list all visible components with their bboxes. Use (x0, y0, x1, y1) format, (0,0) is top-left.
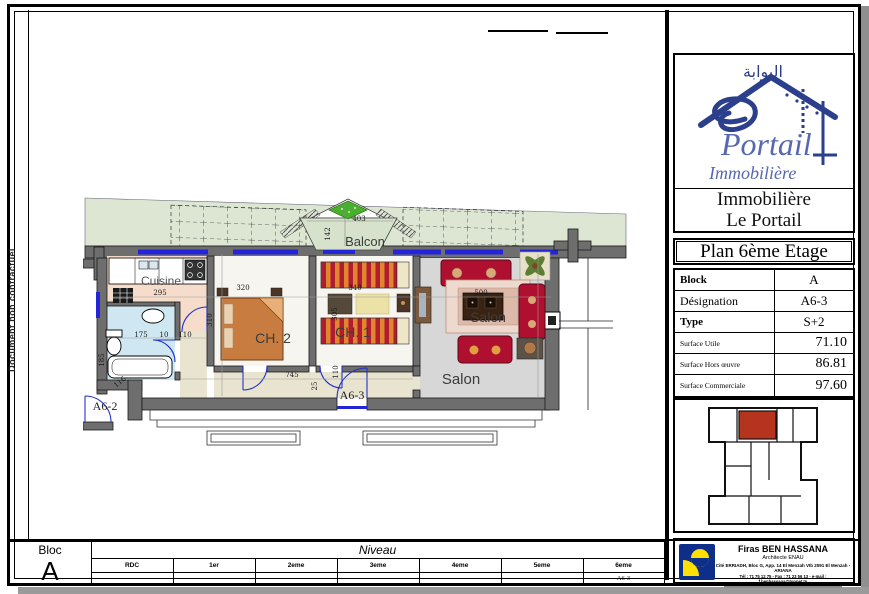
salon-window (445, 250, 503, 255)
spec-value: 97.60 (775, 375, 853, 396)
dim-corridor-length: 745 (277, 371, 307, 379)
spec-label: Block (675, 270, 775, 290)
spec-label: Surface Utile (675, 333, 775, 353)
toilet-icon (107, 337, 121, 355)
toilet-tank (106, 330, 122, 337)
dim-bath-width: 175 (126, 331, 156, 339)
agency-name-line1: Immobilière (675, 189, 853, 210)
pillow (224, 328, 233, 348)
floor-plan: Balcon Cuisine CH. 2 CH. 1 Salon Salon A… (83, 188, 628, 473)
fine-print (724, 586, 842, 588)
nightstand (271, 288, 282, 296)
nightstand (217, 288, 228, 296)
armchair (519, 284, 545, 340)
level-value-rdc (91, 572, 173, 585)
bedroom2-window (233, 250, 298, 255)
agency-logo: البوابة Portail Immobilière (675, 55, 853, 187)
dim-ch2-width: 320 (228, 284, 258, 292)
sheet-title: Plan 6ème Etage (676, 241, 852, 262)
level-header-2eme: 2eme (255, 558, 337, 572)
spec-table: Block A Désignation A6-3 Type S+2 Surfac… (673, 268, 855, 398)
spec-label: Type (675, 312, 775, 332)
panel-separator-line (665, 10, 669, 580)
bath-window (96, 292, 100, 318)
room-label-cuisine: Cuisine (133, 274, 189, 288)
level-value-4eme (419, 572, 501, 585)
dim-balcony-depth: 142 (324, 219, 332, 249)
level-header-rdc: RDC (91, 558, 173, 572)
footer-table: Bloc A Niveau RDC 1er 2eme 3eme 4eme 5em… (8, 541, 665, 585)
dim-balcony-width: 403 (344, 215, 374, 223)
architect-role: Architecte ENAU (715, 555, 851, 561)
level-header-3eme: 3eme (337, 558, 419, 572)
key-plan-highlighted-unit (739, 411, 776, 439)
agency-logo-box: البوابة Portail Immobilière Immobilière … (673, 53, 855, 233)
room-label-salon: Salon (433, 371, 489, 388)
unit-label-a63: A6-3 (330, 388, 374, 403)
level-value-2eme (255, 572, 337, 585)
dim-ch2-depth: 310 (206, 305, 214, 335)
dim-ch1-depth: 305 (331, 299, 339, 329)
spec-row-block: Block A (675, 270, 853, 291)
architect-contact: Tél : 71 75 12 75 - Fax : 71 23 56 13 - … (715, 574, 851, 584)
key-plan-box (673, 398, 855, 533)
agency-name-line2: Le Portail (675, 210, 853, 231)
level-value-6eme: A6-3 (583, 572, 664, 585)
scan-shadow-right (861, 6, 869, 594)
architect-box: Firas BEN HASSANA Architecte ENAU Cité E… (673, 538, 855, 584)
hall-floor (180, 332, 207, 398)
entrance-threshold (337, 406, 367, 409)
level-header-6eme: 6eme (583, 558, 664, 572)
spec-row-surface-commerciale: Surface Commerciale 97.60 (675, 375, 853, 396)
neighbour-unit-lines (559, 258, 613, 410)
scan-shadow-bottom (18, 587, 869, 594)
plan-sheet-page: Document non contractuel (0, 0, 869, 594)
bedroom2-furniture (217, 288, 283, 360)
loveseat (458, 336, 512, 363)
level-header-4eme: 4eme (419, 558, 501, 572)
spec-value: A (775, 270, 853, 290)
dim-ch1-width: 340 (340, 284, 370, 292)
level-header-5eme: 5eme (501, 558, 583, 572)
spec-value: A6-3 (775, 291, 853, 311)
unit-label-a62: A6-2 (85, 399, 125, 414)
footer-bloc-value: A (9, 558, 91, 585)
left-margin-line (28, 10, 29, 540)
level-value-1er (173, 572, 255, 585)
neighbour-wall-segment (488, 30, 548, 32)
bedroom1-window (393, 250, 441, 255)
salon-wall-niche (544, 312, 560, 329)
spec-row-surface-utile: Surface Utile 71.10 (675, 333, 853, 354)
bathtub-icon (108, 356, 172, 378)
washbasin-icon (142, 309, 164, 323)
architect-logo (679, 544, 715, 580)
spec-row-surface-hors-oeuvre: Surface Hors œuvre 86.81 (675, 354, 853, 375)
dim-kitchen-width: 295 (145, 289, 175, 297)
level-value-3eme (337, 572, 419, 585)
room-label-salon-center: Salon (461, 309, 515, 325)
logo-immobiliere-script: Immobilière (708, 163, 796, 183)
spec-row-type: Type S+2 (675, 312, 853, 333)
logo-portail-text: Portail (720, 126, 812, 162)
architect-info: Firas BEN HASSANA Architecte ENAU Cité E… (715, 544, 851, 588)
agency-name: Immobilière Le Portail (675, 188, 853, 231)
dim-hall-width: 110 (173, 331, 197, 339)
spec-label: Surface Hors œuvre (675, 354, 775, 374)
dim-salon-width: 500 (466, 289, 496, 297)
architect-address: Cité ERRIADH, Bloc G, App. 14 El Menzah … (715, 563, 851, 573)
dim-wall-gap: 10 (157, 331, 171, 339)
spec-label: Surface Commerciale (675, 375, 775, 396)
spec-label: Désignation (675, 291, 775, 311)
spec-value: 86.81 (775, 354, 853, 374)
room-label-balcon: Balcon (335, 234, 395, 249)
architect-name: Firas BEN HASSANA (715, 544, 851, 554)
room-label-ch2: CH. 2 (243, 330, 303, 346)
footer-niveau-label: Niveau (91, 542, 664, 558)
kitchen-appliance (113, 288, 133, 303)
non-contractual-note: Document non contractuel (7, 228, 17, 392)
level-header-1er: 1er (173, 558, 255, 572)
kitchen-sink (139, 261, 148, 269)
dim-entry-offset: 25 (311, 379, 319, 393)
neighbour-wall-segment (556, 32, 608, 34)
balcony-door (323, 250, 355, 254)
sheet-title-box: Plan 6ème Etage (673, 238, 855, 265)
kitchen-window (138, 250, 208, 255)
key-plan (675, 400, 853, 531)
pillow (224, 304, 233, 324)
spec-value: S+2 (775, 312, 853, 332)
dim-bath-depth: 185 (98, 345, 106, 375)
dim-entry-width: 110 (332, 357, 340, 387)
spec-row-designation: Désignation A6-3 (675, 291, 853, 312)
spec-value: 71.10 (775, 333, 853, 353)
level-value-5eme (501, 572, 583, 585)
